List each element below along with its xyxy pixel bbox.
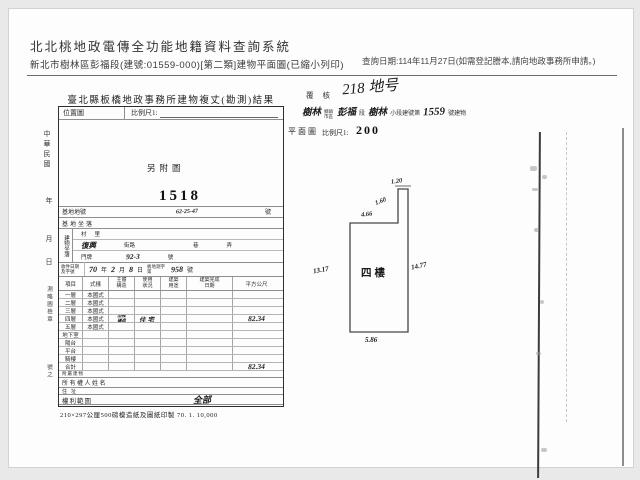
cell-usage	[135, 307, 161, 314]
scan-smudge	[540, 300, 544, 304]
form-footer-note: 210×297公厘500磅模造紙及圖紙印製 70. 1. 10,000	[60, 409, 218, 419]
cell-purpose	[161, 291, 187, 298]
site-number-row: 基地地號 62-25-47 號	[59, 206, 283, 218]
receipt-number-unit: 號	[187, 265, 193, 274]
scan-faint-line	[566, 132, 567, 422]
cell-structure	[109, 331, 135, 338]
door-label: 門牌	[81, 253, 92, 261]
receipt-row: 收件日期及字號 70 年 2 月 8 日 板地測字第 958 號	[59, 262, 283, 277]
cell-date	[187, 339, 233, 346]
cell-style	[83, 331, 109, 338]
document-subtitle: 新北市樹林區彭福段(建號:01559-000)[第二類]建物平面圖(已縮小列印)	[30, 57, 344, 71]
margin-note-era: 中華民國	[42, 130, 52, 170]
cell-area	[233, 291, 280, 298]
location-scale-cell: 比例尺1:	[125, 108, 283, 118]
column-header-area: 平方公尺	[233, 277, 280, 290]
cell-structure	[109, 347, 135, 354]
cell-usage	[135, 331, 161, 338]
site-location-row: 基地坐落	[59, 218, 283, 229]
scan-smudge	[530, 166, 537, 171]
cell-style: 本國式	[83, 307, 109, 314]
cell-structure	[109, 307, 135, 314]
cell-item: 騎樓	[59, 355, 83, 362]
subsection-unit-label: 小段建號第	[390, 108, 420, 117]
scan-page-edge-line	[622, 128, 624, 466]
cell-structure	[109, 323, 135, 330]
site-number-suffix: 號	[265, 207, 283, 216]
cell-area	[233, 299, 280, 306]
table-header-row: 項目 式樣 主體構造 使用狀況 建築用途 建築完成日期 平方公尺	[59, 277, 283, 291]
table-row: 二層 本國式	[59, 299, 283, 307]
cell-purpose	[161, 315, 187, 322]
village-label: 村里	[81, 230, 108, 238]
column-header-usage: 使用狀況	[135, 277, 161, 290]
lane-label: 巷	[193, 241, 199, 249]
cell-date	[187, 323, 233, 330]
cell-area: 82.34	[233, 315, 280, 322]
cell-structure: 加強磚造	[109, 315, 135, 322]
cell-area	[233, 307, 280, 314]
owner-label: 所有權人姓名	[59, 378, 107, 387]
survey-form: 位置圖 比例尺1: 另附圖 1518 基地地號 62-25-47 號 基地坐落 …	[58, 106, 284, 407]
table-row: 五層 本國式	[59, 323, 283, 331]
appendix-row: 附屬建物	[59, 371, 283, 378]
plan-label: 平面圖	[288, 126, 318, 137]
form-title: 臺北縣板橋地政事務所建物複丈(勘測)結果	[56, 92, 286, 106]
dimension-upper-width: 4.66	[361, 210, 373, 218]
margin-note-day: 日	[44, 258, 54, 265]
table-row: 一層 本國式	[59, 291, 283, 299]
building-number-value: 1559	[423, 106, 445, 119]
cell-usage	[135, 347, 161, 354]
cell-structure	[109, 339, 135, 346]
map-attached-note: 另附圖	[147, 162, 185, 174]
cell-usage	[135, 355, 161, 362]
cell-purpose	[161, 339, 187, 346]
column-header-item: 項目	[59, 277, 83, 290]
cell-area	[233, 355, 280, 362]
cell-usage: 住宅	[135, 315, 161, 322]
screenshot-root: 北北桃地政電傳全功能地籍資料查詢系統 新北市樹林區彭福段(建號:01559-00…	[0, 0, 640, 480]
cell-date	[187, 299, 233, 306]
cell-style	[83, 339, 109, 346]
receipt-year: 70	[89, 264, 97, 273]
receipt-month: 2	[111, 264, 115, 273]
street-value: 復興	[81, 239, 96, 251]
scan-smudge	[542, 175, 547, 179]
cell-area	[233, 331, 280, 338]
subsection-value: 樹林	[368, 104, 387, 119]
cell-purpose	[161, 307, 187, 314]
table-row: 三層 本國式	[59, 307, 283, 315]
scan-smudge	[532, 188, 538, 191]
cell-item: 四層	[59, 315, 83, 322]
margin-note-year: 年	[44, 197, 54, 204]
column-header-purpose: 建築用途	[161, 277, 187, 290]
map-number: 1518	[159, 188, 201, 205]
cell-structure	[109, 291, 135, 298]
receipt-month-unit: 月	[119, 265, 125, 274]
cell-style	[83, 355, 109, 362]
plan-scale-label: 比例尺1:	[322, 128, 348, 138]
address-label: 住址	[59, 388, 80, 395]
location-map-header-row: 位置圖 比例尺1:	[59, 107, 283, 120]
table-row: 地下室	[59, 331, 283, 339]
table-row: 四層 本國式 加強磚造 住宅 82.34	[59, 315, 283, 323]
section-unit-label: 段	[359, 108, 365, 117]
site-number-value: 62-25-47	[175, 208, 197, 215]
cell-style: 本國式	[83, 291, 109, 298]
rights-value: 全部	[193, 393, 211, 407]
cell-style	[83, 363, 109, 370]
receipt-year-unit: 年	[101, 265, 107, 274]
cell-area	[233, 347, 280, 354]
cell-item: 二層	[59, 299, 83, 306]
column-header-structure: 主體構造	[109, 277, 135, 290]
cell-date	[187, 355, 233, 362]
table-row: 陽台	[59, 339, 283, 347]
receipt-label: 收件日期及字號	[59, 262, 85, 276]
cell-usage	[135, 291, 161, 298]
building-location-block: 建物坐落 村里 復興 街路 巷 弄 門牌 92-3 號	[59, 229, 283, 263]
location-map-label: 位置圖	[59, 107, 125, 119]
cell-purpose	[161, 331, 187, 338]
town-unit-label: 鄉鎮市區	[324, 109, 334, 119]
street-label: 街路	[124, 241, 135, 249]
building-location-label: 建物坐落	[59, 229, 73, 262]
cell-date	[187, 363, 233, 370]
receipt-number: 958	[171, 264, 183, 273]
rights-row: 權利範圍 全部	[59, 395, 283, 405]
section-value: 彭福	[337, 104, 356, 119]
owner-row: 所有權人姓名	[59, 378, 283, 388]
cell-usage	[135, 323, 161, 330]
cell-structure	[109, 355, 135, 362]
column-header-style: 式樣	[83, 277, 109, 290]
cell-purpose	[161, 355, 187, 362]
site-number-label: 基地地號	[59, 207, 108, 216]
cell-purpose	[161, 363, 187, 370]
door-number-suffix: 號	[168, 253, 174, 261]
cell-item: 五層	[59, 323, 83, 330]
street-row: 復興 街路 巷 弄	[73, 240, 283, 251]
plan-scale-value: 200	[356, 123, 380, 138]
scan-smudge	[541, 448, 547, 452]
building-number-unit-label: 號建物	[448, 108, 466, 117]
review-label: 覆核	[306, 90, 339, 101]
table-row-total: 合計 82.34	[59, 363, 283, 371]
rights-label: 權利範圍	[59, 395, 122, 405]
cell-style: 本國式	[83, 315, 109, 322]
cell-date	[187, 315, 233, 322]
town-value: 樹林	[302, 104, 321, 119]
scan-smudge	[536, 352, 541, 355]
cell-area	[233, 339, 280, 346]
appendix-label: 附屬建物	[59, 371, 84, 377]
cell-usage	[135, 299, 161, 306]
site-location-label: 基地坐落	[59, 219, 94, 228]
cell-date	[187, 347, 233, 354]
system-title: 北北桃地政電傳全功能地籍資料查詢系統	[30, 36, 291, 55]
cell-purpose	[161, 347, 187, 354]
village-row: 村里	[73, 229, 283, 240]
cell-style: 本國式	[83, 299, 109, 306]
cell-item: 地下室	[59, 331, 83, 338]
cell-date	[187, 307, 233, 314]
cell-structure	[109, 363, 135, 370]
cell-area	[233, 323, 280, 330]
scan-smudge	[534, 228, 539, 232]
floor-label: 四樓	[361, 265, 388, 280]
table-row: 騎樓	[59, 355, 283, 363]
cell-style: 本國式	[83, 323, 109, 330]
margin-note-number: 號之	[45, 364, 53, 379]
column-header-completion-date: 建築完成日期	[187, 277, 233, 290]
cell-date	[187, 291, 233, 298]
cell-structure	[109, 299, 135, 306]
cell-item: 陽台	[59, 339, 83, 346]
floor-plan: 1.20 1.60 4.66 13.17 14.77 5.86 四樓	[295, 170, 465, 370]
plan-title-line: 樹林 鄉鎮市區 彭福 段 樹林 小段建號第 1559 號建物	[302, 104, 466, 121]
cell-usage	[135, 363, 161, 370]
cell-style	[83, 347, 109, 354]
cell-item: 合計	[59, 363, 83, 370]
cell-purpose	[161, 299, 187, 306]
alley-label: 弄	[227, 241, 233, 249]
margin-note-month: 月	[44, 235, 54, 242]
receipt-day: 8	[129, 264, 133, 273]
header-divider	[27, 75, 617, 76]
receipt-content: 70 年 2 月 8 日 板地測字第 958 號	[85, 264, 283, 274]
receipt-day-unit: 日	[137, 265, 143, 274]
cell-item: 三層	[59, 307, 83, 314]
location-map-area: 另附圖 1518	[59, 120, 283, 207]
cell-usage	[135, 339, 161, 346]
cell-item: 平台	[59, 347, 83, 354]
cell-purpose	[161, 323, 187, 330]
door-number-row: 門牌 92-3 號	[73, 251, 283, 262]
cell-item: 一層	[59, 291, 83, 298]
cell-area: 82.34	[233, 363, 280, 370]
door-number-value: 92-3	[126, 252, 140, 261]
location-scale-label: 比例尺1:	[131, 108, 157, 118]
table-row: 平台	[59, 347, 283, 355]
margin-note-seal: 測略圖檢章	[45, 286, 53, 324]
receipt-word: 板地測字第	[147, 264, 167, 274]
query-date: 查詢日期:114年11月27日(如需登記謄本,請向地政事務所申請。)	[362, 55, 595, 67]
dimension-bottom-width: 5.86	[365, 336, 377, 344]
blank-underline	[160, 109, 278, 118]
cell-date	[187, 331, 233, 338]
